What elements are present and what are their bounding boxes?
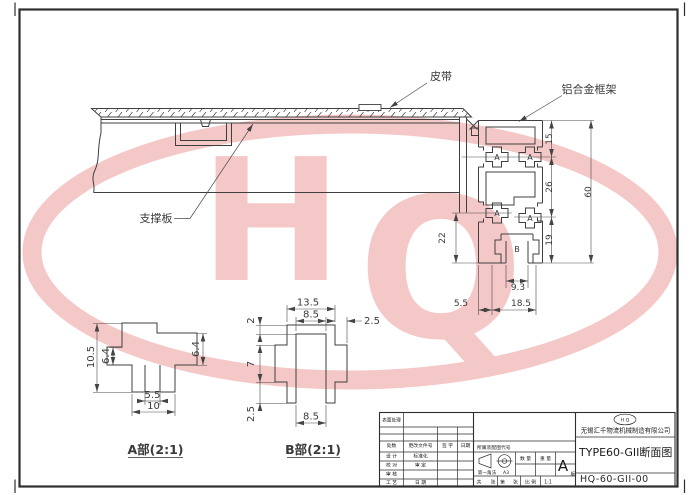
watermark-ellipse-ring xyxy=(32,124,668,380)
rev-col-date: 日期 xyxy=(461,443,471,449)
detail-b-title: B部(2:1) xyxy=(285,442,341,457)
dim-15: 15 xyxy=(545,133,555,144)
frame-callout: 铝合金框架 xyxy=(562,82,617,96)
sig-row-design: 设 计 xyxy=(386,453,397,460)
projection-method-label: 第一角法 xyxy=(478,469,497,476)
detail-b-dim-2-text: 2 xyxy=(246,317,257,323)
detail-a-title: A部(2:1) xyxy=(128,442,184,457)
watermark-letter-h: H xyxy=(200,123,342,321)
sheets-no-label: 第 xyxy=(500,479,505,486)
belt-hatched-section xyxy=(92,109,472,118)
sig-row-standard: 标准化 xyxy=(413,453,428,460)
hq-watermark: H Q xyxy=(32,123,668,383)
dim-60: 60 xyxy=(584,186,594,198)
frame-leader-line xyxy=(519,96,562,122)
sheets-total-unit: 张 xyxy=(491,479,496,486)
detail-a-dim-10-5-text: 10.5 xyxy=(86,346,97,368)
sheets-no-unit: 张 xyxy=(513,479,518,486)
version-letter: A xyxy=(558,457,569,475)
scale-value: 1:1 xyxy=(544,480,552,486)
trim-marks xyxy=(15,3,685,494)
version-sub-label: 版 xyxy=(571,471,576,478)
detail-a-dim-10-text: 10 xyxy=(147,401,160,412)
scale-label: 比 例 xyxy=(525,479,536,486)
assembly-code-label: 所属装配图代号 xyxy=(477,444,511,451)
belt-callout: 皮带 xyxy=(430,70,452,83)
dim-19: 19 xyxy=(545,234,555,246)
slot-mark-a3: A xyxy=(494,209,500,218)
detail-b-extensions xyxy=(256,305,362,427)
detail-b-dim-8-5-bottom-text: 8.5 xyxy=(303,412,319,423)
detail-a-dim-6-4-right-text: 6.4 xyxy=(191,341,202,357)
support-plate-callout: 支撑板 xyxy=(140,211,173,225)
belt-leader-line xyxy=(390,83,427,108)
slot-mark-a2: A xyxy=(527,153,533,162)
detail-b-dim-8-5-top-text: 8.5 xyxy=(303,310,319,321)
detail-b-dim-2-5-right-text: 2.5 xyxy=(364,316,380,327)
sig-row-check: 校 对 xyxy=(386,462,397,469)
dim-22: 22 xyxy=(438,232,448,243)
dim-18-5: 18.5 xyxy=(511,299,531,309)
slot-mark-a4: A xyxy=(527,214,533,223)
first-angle-cone-symbol xyxy=(479,454,491,468)
rev-col-qty: 处数 xyxy=(387,442,397,449)
title-block: 表面处理 处数 更改文件号 签 字 日期 设 计 标准化 校 对 审 定 审 核… xyxy=(380,413,676,487)
company-name: 无锡汇千物流机械制造有限公司 xyxy=(581,426,670,435)
sig-row-approve: 审 定 xyxy=(415,462,426,469)
slot-mark-b: B xyxy=(514,245,520,254)
drawing-title: TYPE60-GII断面图 xyxy=(578,445,672,459)
dim-5-5: 5.5 xyxy=(454,299,468,309)
detail-a-dim-5-5-text: 5.5 xyxy=(145,390,161,401)
hq-logo-text: H Q xyxy=(621,417,630,423)
drawing-number: HQ-60-GII-00 xyxy=(580,474,649,485)
drawing-sheet: H Q xyxy=(0,0,700,495)
surface-treatment-label: 表面处理 xyxy=(382,417,401,424)
detail-b-dim-2-5-bottom-text: 2.5 xyxy=(246,406,257,422)
quantity-label: 数 量 xyxy=(520,455,531,462)
sheet-border xyxy=(15,3,685,494)
detail-b-dim-13-5-text: 13.5 xyxy=(297,298,319,309)
detail-b-dim-7-text: 7 xyxy=(246,361,257,367)
rev-col-docno: 更改文件号 xyxy=(409,442,433,449)
sig-row-process: 工 艺 xyxy=(386,480,397,486)
detail-a-dim-6-4-left-text: 6.4 xyxy=(101,348,112,364)
sig-row-review: 审 核 xyxy=(386,471,397,478)
sheets-total-label: 共 xyxy=(477,479,482,486)
cad-drawing: H Q xyxy=(0,0,700,495)
slot-mark-a1: A xyxy=(494,153,500,162)
sheet-size-label: A3 xyxy=(503,470,509,476)
detail-b-shape xyxy=(275,325,347,403)
sig-row-date: 日 期 xyxy=(415,480,426,486)
belt-splice-plate xyxy=(359,105,381,111)
weight-label: 重 量 xyxy=(540,455,551,462)
rev-col-sign: 签 字 xyxy=(442,442,453,449)
dim-9-3: 9.3 xyxy=(511,283,525,293)
dim-26: 26 xyxy=(545,181,555,193)
watermark-letter-q: Q xyxy=(358,156,524,383)
